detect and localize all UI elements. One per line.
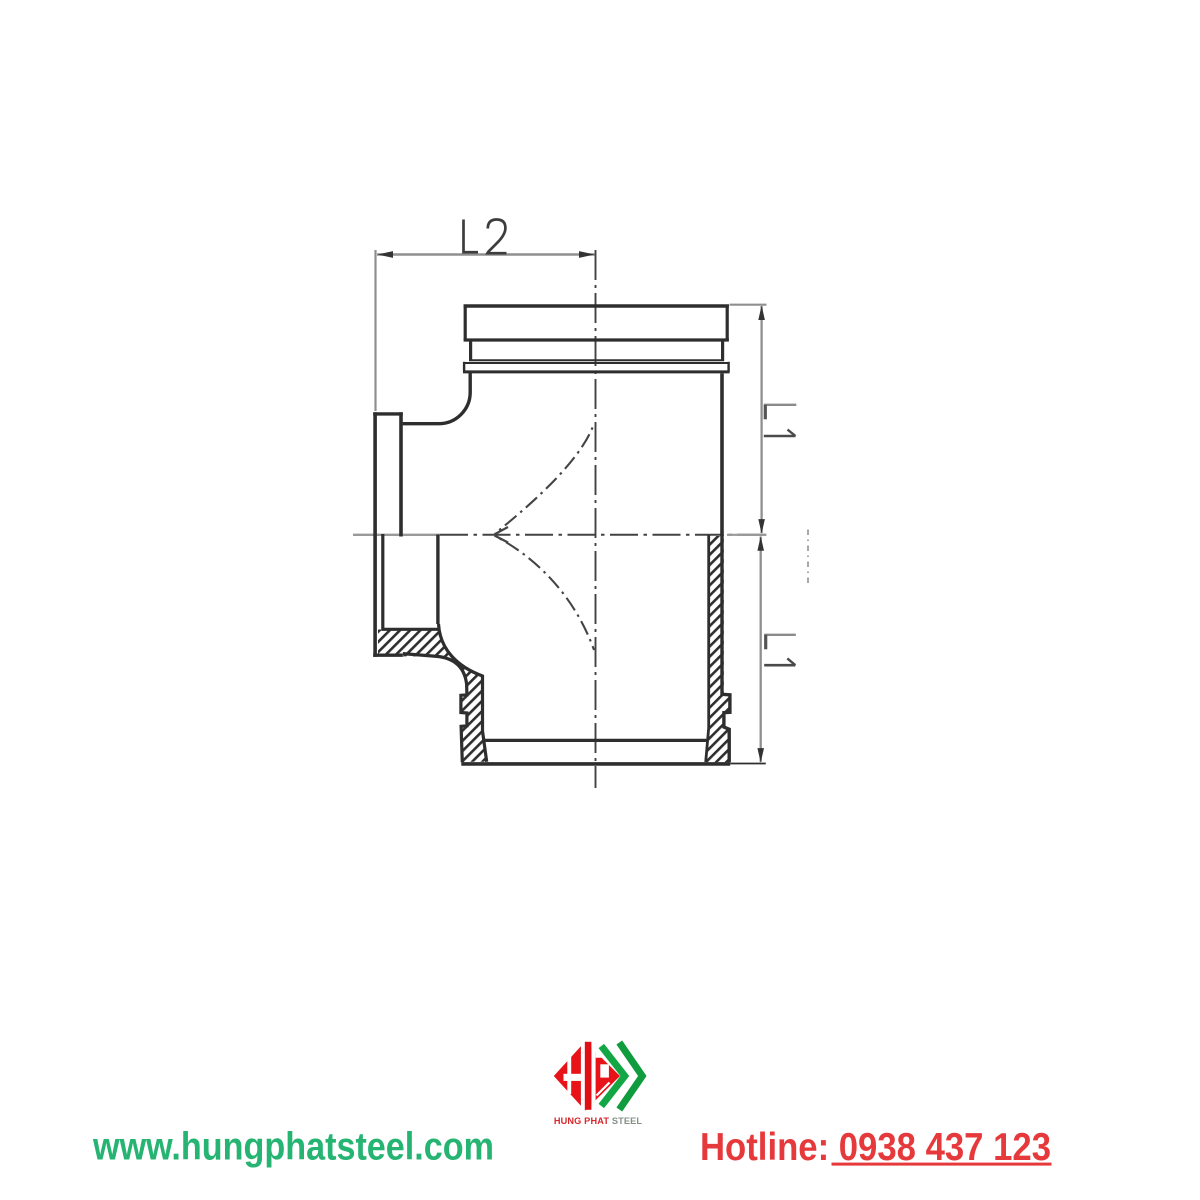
svg-text:www.hungphatsteel.com: www.hungphatsteel.com [92,1126,494,1169]
svg-text:HUNG PHAT STEEL: HUNG PHAT STEEL [554,1116,643,1126]
svg-text:Hotline: 0938 437 123: Hotline: 0938 437 123 [700,1126,1051,1169]
